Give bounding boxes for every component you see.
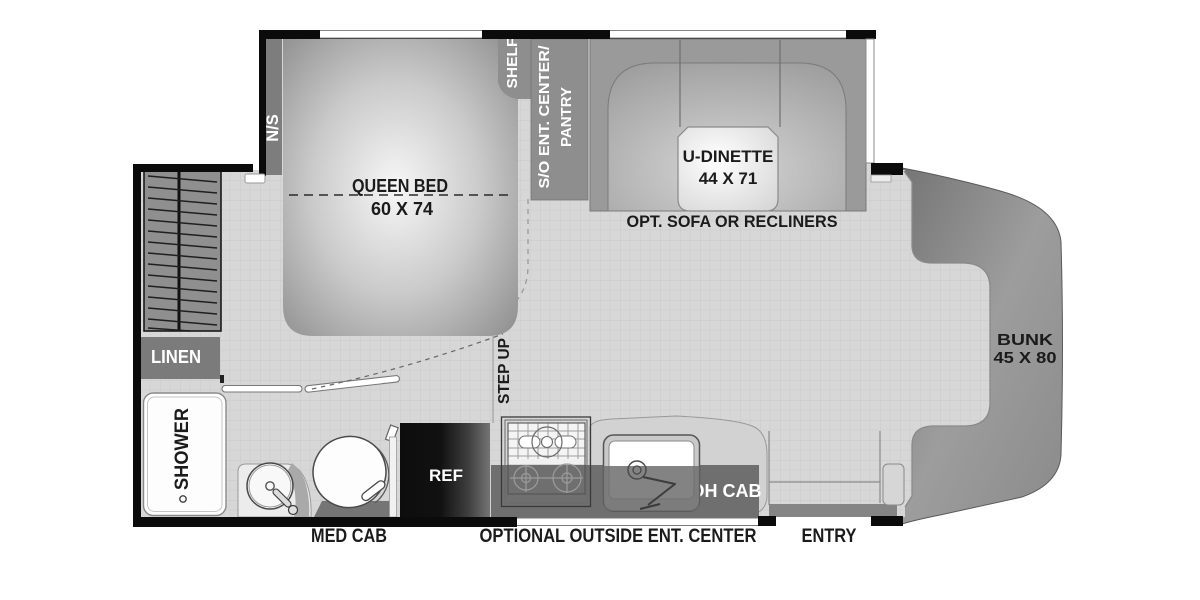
svg-text:44 X 71: 44 X 71 bbox=[699, 169, 758, 188]
svg-text:S/O ENT. CENTER/: S/O ENT. CENTER/ bbox=[536, 45, 553, 189]
svg-text:STEP UP: STEP UP bbox=[496, 338, 513, 404]
svg-text:OH CAB: OH CAB bbox=[691, 481, 762, 501]
svg-text:LINEN: LINEN bbox=[151, 347, 201, 367]
svg-text:45 X 80: 45 X 80 bbox=[994, 350, 1057, 367]
svg-text:N/S: N/S bbox=[264, 114, 282, 142]
svg-text:QUEEN BED: QUEEN BED bbox=[352, 176, 448, 196]
svg-text:60 X 74: 60 X 74 bbox=[371, 199, 433, 219]
svg-text:ENTRY: ENTRY bbox=[802, 526, 857, 547]
svg-text:BUNK: BUNK bbox=[997, 332, 1054, 349]
svg-text:REF: REF bbox=[429, 466, 463, 485]
svg-text:SHELF: SHELF bbox=[504, 38, 521, 89]
svg-text:U-DINETTE: U-DINETTE bbox=[683, 147, 774, 166]
svg-text:SHOWER: SHOWER bbox=[172, 408, 193, 490]
svg-text:MED CAB: MED CAB bbox=[311, 526, 387, 547]
svg-text:OPT. SOFA OR RECLINERS: OPT. SOFA OR RECLINERS bbox=[627, 212, 838, 231]
svg-text:PANTRY: PANTRY bbox=[558, 87, 575, 147]
svg-text:OPTIONAL OUTSIDE ENT. CENTER: OPTIONAL OUTSIDE ENT. CENTER bbox=[480, 526, 757, 547]
